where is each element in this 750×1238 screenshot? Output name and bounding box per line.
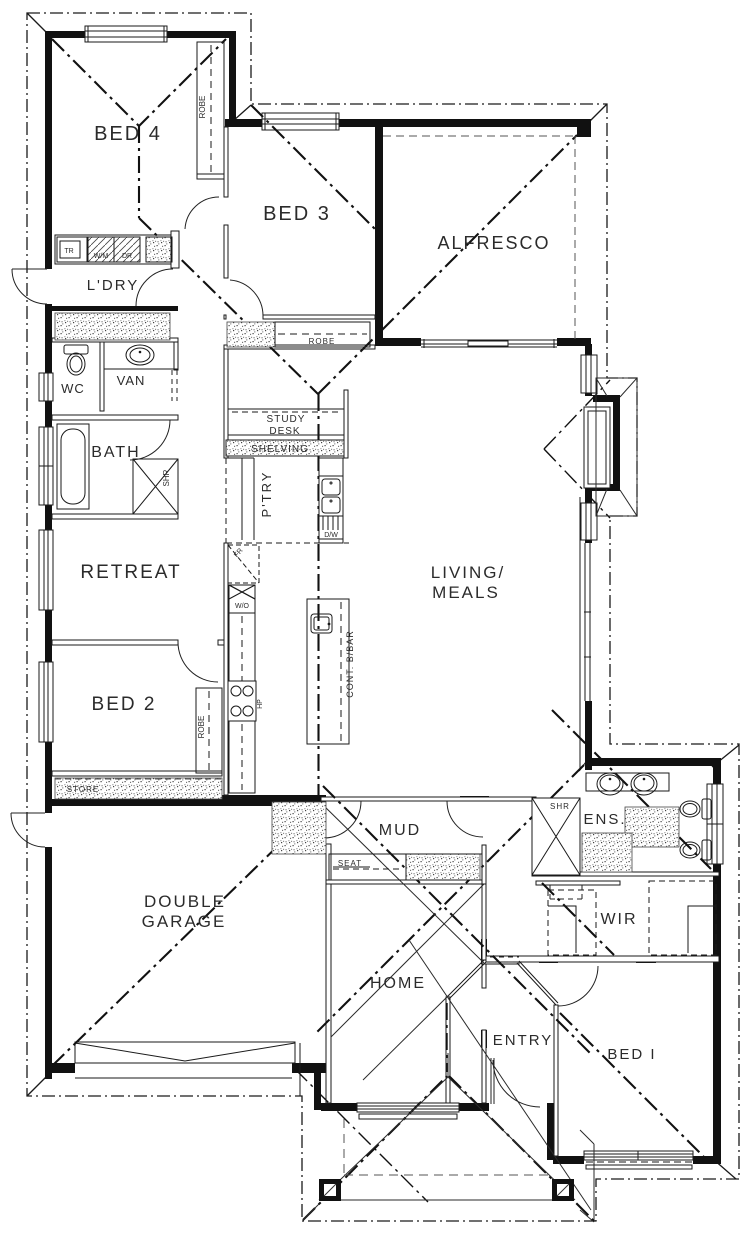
svg-text:MUD: MUD: [379, 822, 421, 839]
svg-text:D/W: D/W: [324, 532, 338, 539]
svg-text:BED I: BED I: [607, 1046, 656, 1063]
svg-text:W/M: W/M: [94, 253, 109, 260]
svg-text:VAN: VAN: [117, 373, 146, 388]
svg-text:SHR: SHR: [162, 469, 171, 486]
svg-text:ENS.: ENS.: [583, 811, 626, 828]
svg-text:BED 3: BED 3: [263, 203, 331, 225]
svg-text:ALFRESCO: ALFRESCO: [437, 233, 550, 253]
svg-text:STUDY: STUDY: [267, 414, 306, 425]
svg-text:LIVING/: LIVING/: [431, 563, 505, 582]
svg-text:HOME: HOME: [370, 975, 426, 992]
svg-text:GARAGE: GARAGE: [142, 912, 227, 931]
svg-text:RETREAT: RETREAT: [80, 562, 181, 583]
svg-text:DOUBLE: DOUBLE: [144, 892, 226, 911]
svg-text:DESK: DESK: [269, 426, 300, 437]
svg-text:P'TRY: P'TRY: [259, 471, 274, 518]
svg-text:DR: DR: [122, 253, 132, 260]
svg-text:TR: TR: [64, 248, 73, 255]
svg-text:L'DRY: L'DRY: [87, 277, 140, 294]
svg-text:STORE: STORE: [67, 785, 99, 794]
svg-text:ROBE: ROBE: [198, 96, 207, 119]
svg-text:ROBE: ROBE: [197, 716, 206, 739]
svg-text:BATH: BATH: [91, 444, 140, 461]
svg-text:W/O: W/O: [235, 603, 250, 610]
svg-text:SHELVING: SHELVING: [251, 444, 309, 455]
svg-text:ROBE: ROBE: [309, 337, 336, 346]
svg-text:WC: WC: [61, 381, 85, 396]
svg-text:BED 4: BED 4: [94, 123, 162, 145]
svg-text:WIR: WIR: [600, 911, 637, 928]
svg-text:MEALS: MEALS: [432, 583, 500, 602]
svg-text:SHR: SHR: [550, 802, 570, 811]
svg-text:HP: HP: [257, 699, 264, 709]
svg-text:BED 2: BED 2: [92, 694, 157, 715]
svg-text:CONT. B/BAR: CONT. B/BAR: [345, 630, 355, 698]
svg-text:ENTRY: ENTRY: [493, 1032, 554, 1049]
svg-text:SEAT: SEAT: [338, 859, 362, 868]
